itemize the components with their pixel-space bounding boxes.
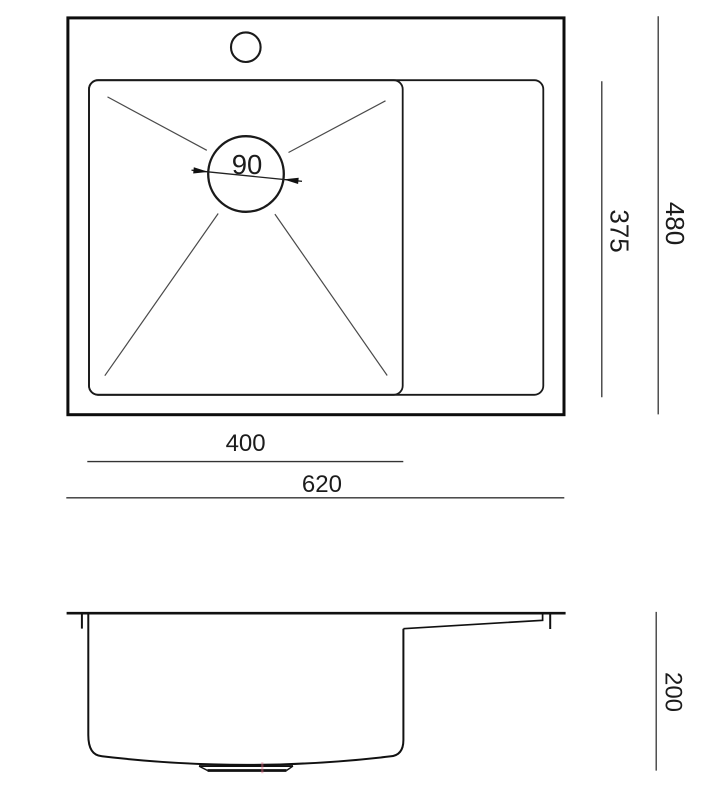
svg-text:400: 400 — [226, 430, 266, 457]
svg-text:375: 375 — [604, 209, 634, 252]
svg-text:480: 480 — [660, 202, 690, 245]
svg-text:620: 620 — [302, 471, 342, 498]
svg-text:90: 90 — [232, 149, 263, 180]
svg-text:200: 200 — [660, 672, 687, 712]
